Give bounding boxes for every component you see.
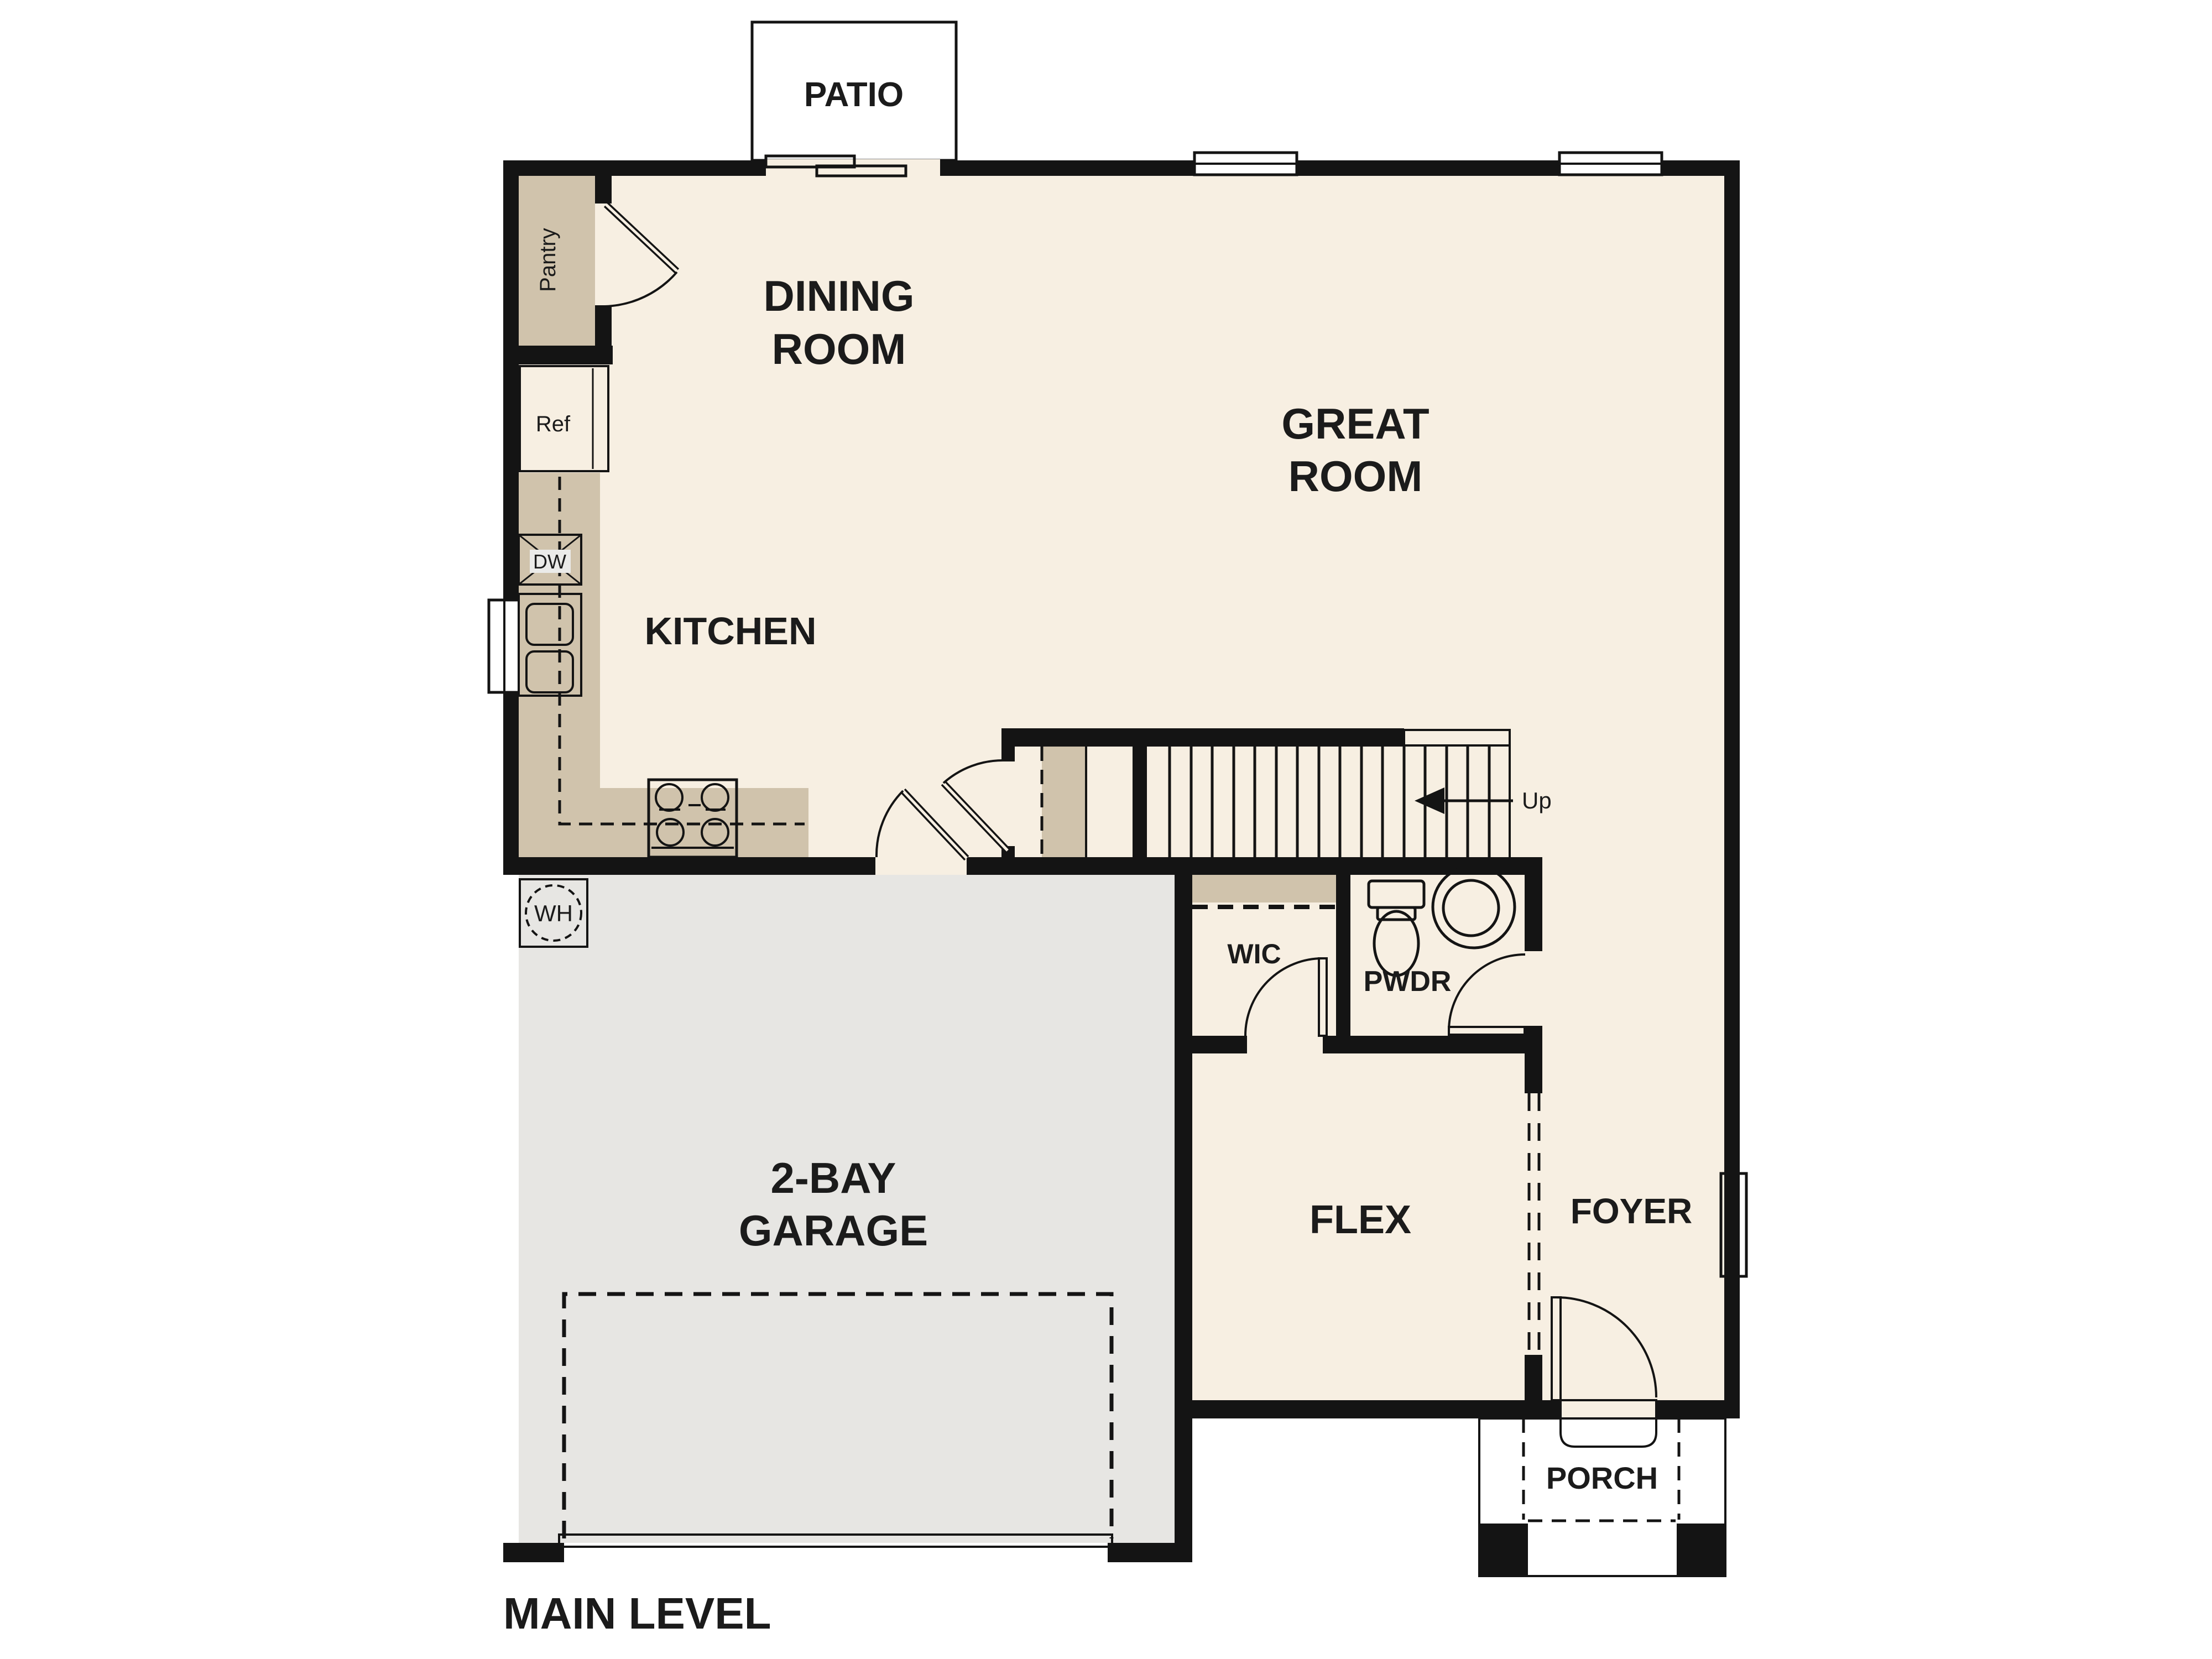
left-wall-upper (503, 160, 519, 600)
stair-closet-divider-wall (1133, 728, 1147, 875)
top-wall-segment-2 (940, 160, 1194, 176)
flex-label: FLEX (1310, 1198, 1411, 1242)
wic-label: WIC (1227, 938, 1281, 969)
wic-bottom-wall-left (1192, 1036, 1247, 1053)
dining-label-line2: ROOM (772, 325, 906, 373)
foyer-bottom-wall-right (1656, 1400, 1740, 1418)
porch-label: PORCH (1546, 1460, 1658, 1495)
porch-post-left (1479, 1524, 1528, 1576)
window-top-left (1194, 153, 1297, 175)
garage-label-line1: 2-BAY (771, 1154, 896, 1202)
porch: PORCH (1479, 1418, 1725, 1576)
patio-label: PATIO (804, 76, 904, 114)
dining-label-line1: DINING (764, 272, 915, 320)
great-room-label-line2: ROOM (1288, 452, 1423, 500)
dishwasher-label: DW (533, 550, 566, 573)
left-wall-lower (503, 692, 519, 875)
garage-bottom-wall-right (1108, 1543, 1192, 1562)
flex-foyer-bottom-wall (1175, 1400, 1561, 1418)
porch-post-right (1677, 1524, 1725, 1576)
foyer-label: FOYER (1571, 1191, 1692, 1231)
floor-plan-page: PATIO (0, 0, 2212, 1659)
garage-label-line2: GARAGE (739, 1206, 928, 1255)
wic-shelf (1192, 875, 1336, 902)
wic-pwdr-divider-wall (1336, 875, 1350, 1053)
window-kitchen-sink (489, 600, 520, 692)
patio-area: PATIO (752, 22, 956, 160)
right-wall (1724, 160, 1740, 1418)
pantry-door-jamb-top (595, 176, 612, 204)
plan-title: MAIN LEVEL (503, 1589, 771, 1638)
pantry-label: Pantry (536, 228, 560, 292)
garage-right-wall (1175, 857, 1192, 1562)
kitchen-label: KITCHEN (644, 609, 816, 653)
top-wall-segment-1 (503, 160, 766, 176)
refrigerator-label: Ref (536, 412, 571, 436)
window-top-right (1559, 153, 1662, 175)
pwdr-label: PWDR (1364, 966, 1452, 998)
wic-pwdr-bottom-wall (1323, 1036, 1542, 1053)
stair-top-wall (1001, 728, 1404, 747)
pantry-bottom-wall (503, 346, 613, 364)
floor-plan-drawing: PATIO (0, 0, 2212, 1659)
understair-closet-shelf (1042, 747, 1086, 857)
pwdr-right-wall-upper (1525, 857, 1542, 951)
pwdr-right-wall-lower (1525, 1026, 1542, 1093)
pantry-door-jamb-bottom (595, 305, 612, 346)
kitchen-garage-wall (503, 857, 875, 875)
water-heater-label: WH (534, 900, 573, 926)
garage-bottom-wall-left (503, 1543, 564, 1562)
top-wall-segment-3 (1297, 160, 1559, 176)
up-label: Up (1522, 787, 1552, 813)
great-room-label-line1: GREAT (1281, 399, 1429, 448)
